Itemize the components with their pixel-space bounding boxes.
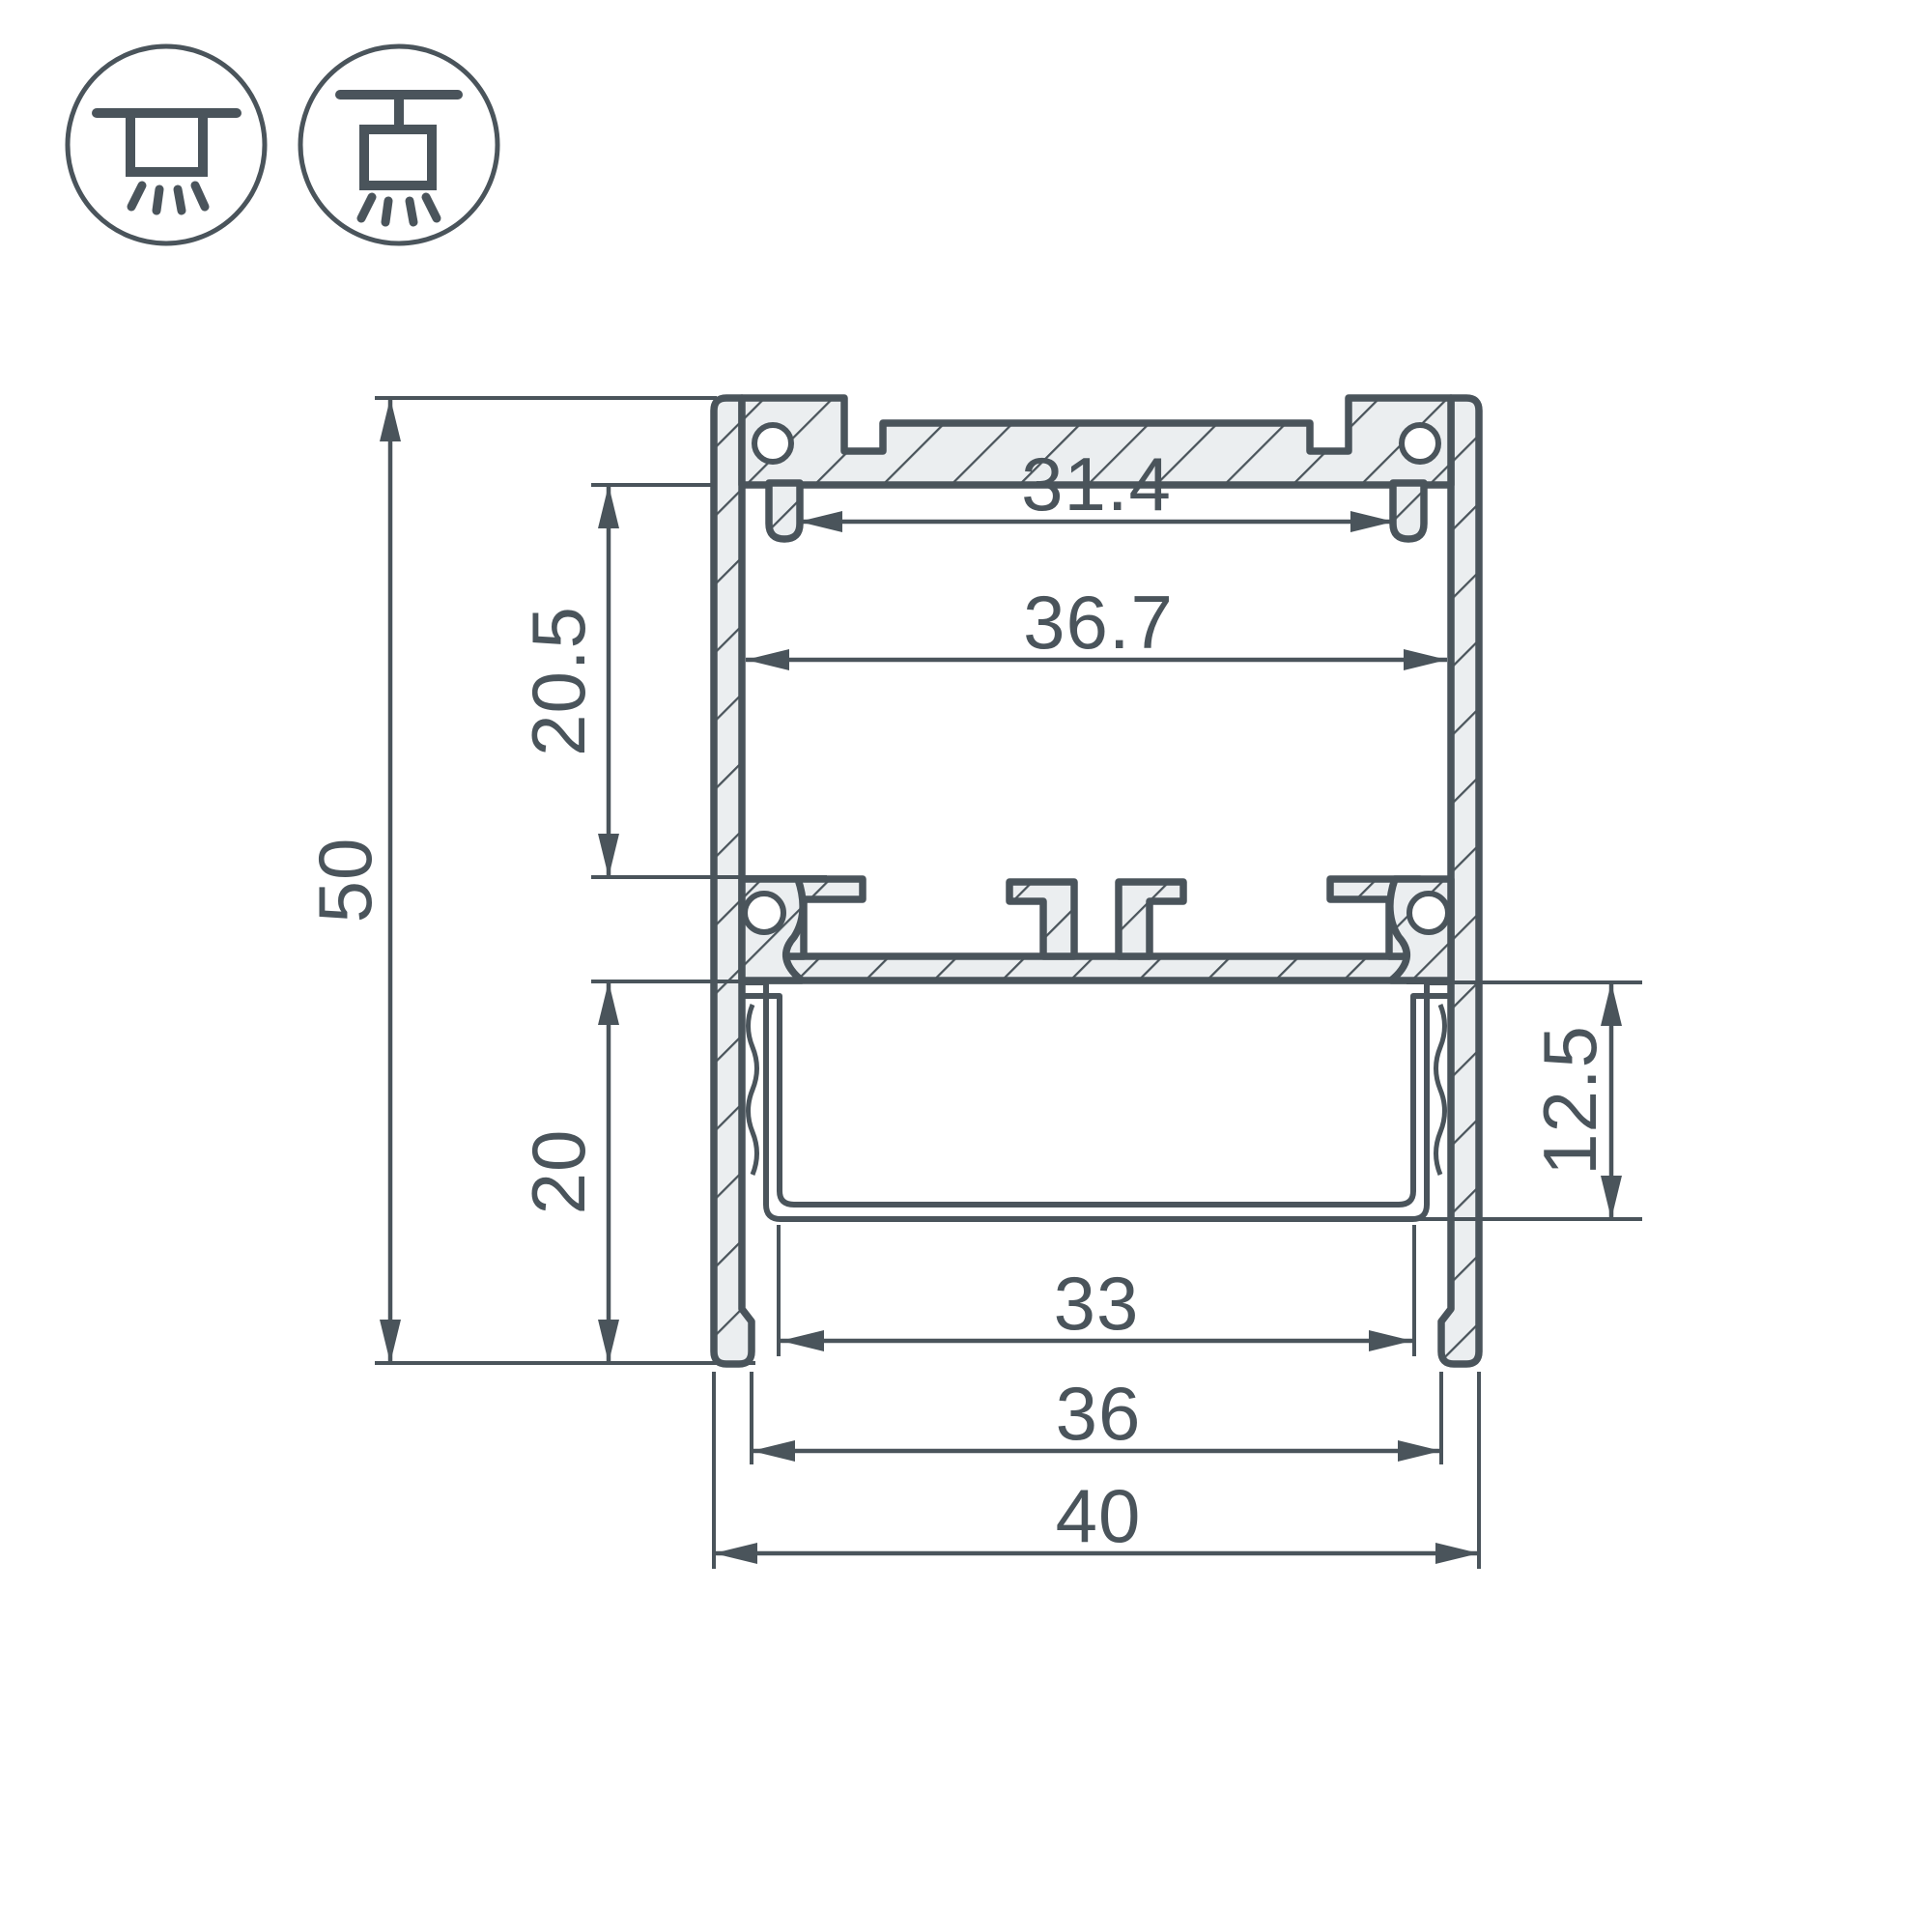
- divider-hook-center-right: [1119, 882, 1183, 956]
- dim-label-diffuser-depth: 12.5: [1527, 1025, 1612, 1176]
- technical-drawing-page: 50 20.5 20 12.5 31.4 36.7 33 36 40: [0, 0, 1932, 1932]
- fixture-box: [130, 113, 203, 172]
- icon-circle: [300, 46, 497, 243]
- ceiling-surface-mount-icon: [68, 46, 265, 243]
- technical-drawing: 50 20.5 20 12.5 31.4 36.7 33 36 40: [0, 0, 1932, 1932]
- clip-spring-left: [749, 1005, 757, 1175]
- fixture-box: [364, 129, 432, 185]
- diffuser-inner-line: [744, 996, 1449, 1205]
- dim-label-bottom-chamber-height: 20: [516, 1129, 601, 1215]
- dim-label-diffuser-inner-width: 33: [1054, 1261, 1140, 1346]
- mount-icons: [68, 46, 497, 243]
- screw-channel-void-right: [1402, 425, 1438, 462]
- ceiling-pendant-mount-icon: [300, 46, 497, 243]
- icon-circle: [68, 46, 265, 243]
- screw-channel-void-left: [754, 425, 791, 462]
- diffuser-outer-line: [744, 982, 1449, 1219]
- clip-socket-void-left: [745, 894, 783, 932]
- top-tab-left: [769, 483, 800, 539]
- light-rays: [131, 185, 205, 211]
- top-tab-right: [1393, 483, 1424, 539]
- divider-hook-center-left: [1009, 882, 1074, 956]
- clip-socket-void-right: [1409, 894, 1448, 932]
- dim-label-bottom-opening-width: 36: [1056, 1371, 1142, 1456]
- dim-label-top-inner-width: 31.4: [1021, 441, 1172, 526]
- dim-label-top-chamber-height: 20.5: [516, 606, 601, 756]
- dim-label-overall-height: 50: [302, 838, 387, 923]
- clip-spring-right: [1436, 1005, 1445, 1175]
- light-rays: [361, 197, 437, 222]
- diffuser: [744, 982, 1449, 1219]
- dim-label-inner-width: 36.7: [1023, 580, 1174, 665]
- middle-divider-plate: [753, 956, 1439, 980]
- dim-label-overall-width: 40: [1056, 1473, 1142, 1558]
